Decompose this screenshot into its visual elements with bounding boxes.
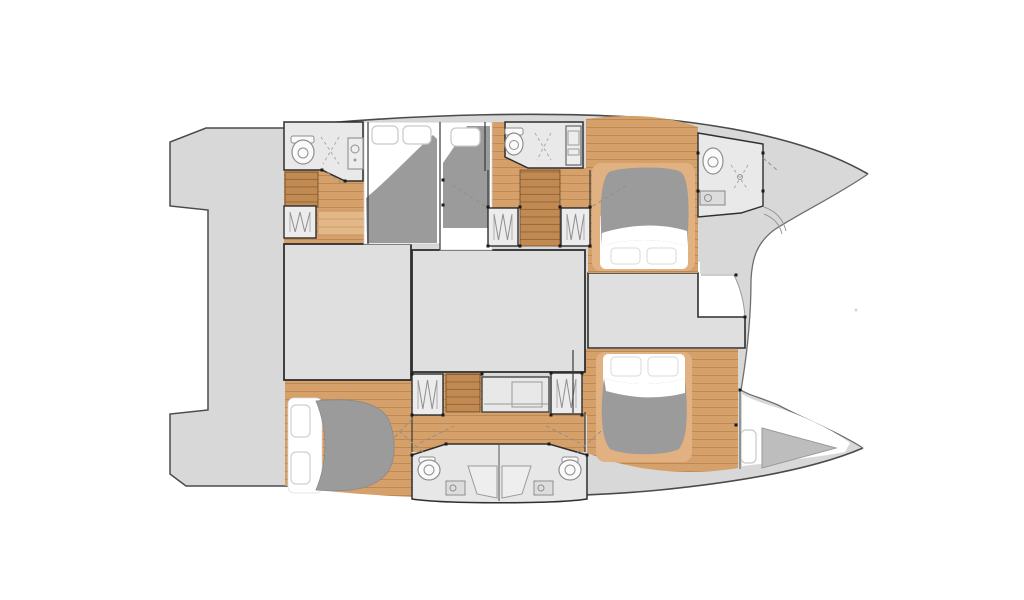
deck-hatch-mid-port: [451, 128, 480, 146]
hinge-dot: [442, 414, 445, 417]
pillow-bow-stbd-2: [648, 357, 678, 376]
pillow-bow-port-1: [611, 248, 640, 264]
stairs-port-aft: [285, 172, 318, 207]
hinge-dot: [559, 206, 562, 209]
hinge-dot: [744, 316, 747, 319]
pillow-aft-stbd-1: [291, 405, 310, 437]
wardrobe-aft-port: [284, 206, 316, 238]
hinge-dot: [697, 190, 700, 193]
hinge-dot: [321, 169, 324, 172]
toilet-bow-port: [703, 148, 723, 174]
wardrobe-corridor-port-left: [488, 208, 518, 246]
wardrobe-corridor-port-right: [561, 208, 590, 246]
hinge-dot: [735, 424, 738, 427]
hinge-dot: [442, 179, 445, 182]
hinge-dot: [481, 373, 484, 376]
toilet-stbd-left: [418, 460, 440, 480]
pillow-bow-port-2: [647, 248, 676, 264]
hinge-dot: [487, 206, 490, 209]
bench-aft-port: [318, 211, 367, 235]
hinge-dot: [586, 454, 589, 457]
stairs-stbd: [446, 374, 480, 412]
hinge-dot: [519, 245, 522, 248]
toilet-aft-port: [292, 140, 314, 164]
hinge-dot: [559, 245, 562, 248]
hinge-dot: [445, 443, 448, 446]
hinge-dot: [589, 245, 592, 248]
hinge-dot: [581, 414, 584, 417]
stern-deck: [170, 128, 290, 486]
saloon-block-mid: [412, 250, 585, 372]
hinge-dot: [548, 443, 551, 446]
hinge-dot: [739, 389, 742, 392]
hinge-dot: [581, 372, 584, 375]
catamaran-floorplan: [0, 0, 1024, 600]
hinge-dot: [735, 274, 738, 277]
bed-aft-stbd-mattress: [316, 400, 394, 491]
hinge-dot: [442, 204, 445, 207]
hinge-dot: [487, 245, 490, 248]
pillow-aft-stbd-2: [291, 452, 310, 484]
toilet-stbd-right: [559, 460, 581, 480]
hinge-dot: [344, 180, 347, 183]
hinge-dot: [550, 414, 553, 417]
hinge-dot: [697, 152, 700, 155]
deck-hatch-aft-port-1: [372, 126, 398, 144]
deck-hatch-aft-port-2: [403, 126, 431, 144]
hinge-dot: [411, 454, 414, 457]
pillow-bow-stbd-1: [611, 357, 641, 376]
speck-artifact: [855, 309, 858, 312]
sink-aft-port-drain: [354, 159, 357, 162]
sink-aft-port: [348, 138, 363, 169]
saloon-block-aft: [284, 244, 411, 380]
hinge-dot: [762, 152, 765, 155]
sink-bow-port: [700, 191, 725, 205]
floorplan-canvas: [0, 0, 1024, 600]
forepeak-hatch: [741, 430, 756, 463]
hinge-dot: [519, 206, 522, 209]
hinge-dot: [411, 414, 414, 417]
hinge-dot: [762, 190, 765, 193]
hinge-dot: [589, 206, 592, 209]
toilet-mid-port: [505, 133, 523, 155]
hinge-dot: [411, 373, 414, 376]
hinge-dot: [550, 372, 553, 375]
stairs-port-main: [520, 170, 560, 246]
